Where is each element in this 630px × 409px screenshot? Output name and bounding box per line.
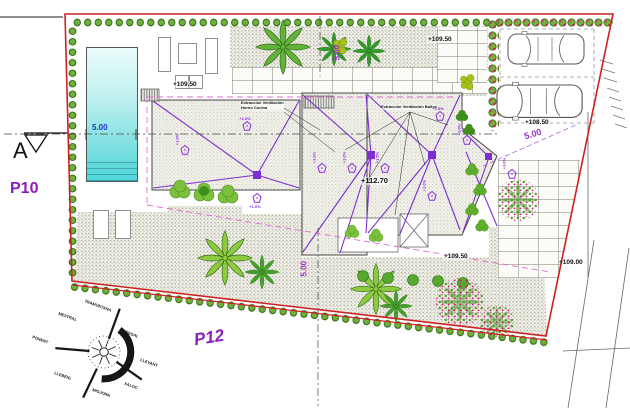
car [508,32,584,67]
elevation-roof: +112.70 [360,177,389,185]
stairs [304,96,334,108]
slope-label: +1.5% [375,149,380,167]
elevation-garden-bottom: +109.50 [443,253,469,260]
elevation-garden-top: +109.50 [427,36,453,43]
setback-dimension-top: 5.00 [333,41,342,61]
stairs [141,89,159,101]
slope-label: +1.0% [175,131,180,149]
elevation-street: +109.00 [558,259,584,266]
building-roof [152,93,497,255]
plan-drawing [0,0,630,409]
pool-dimension: 5.00 [92,123,108,132]
slope-label: +1.0% [422,177,427,195]
setback-dimension-bottom: 5.00 [300,257,309,277]
slope-label: +1.5% [429,106,447,111]
vent-kitchen-note: Extracción Ventilación Horno Cocina [241,101,284,110]
slope-label: +1.0% [236,116,254,121]
section-marker-label: A [13,138,28,164]
slope-label: +1.0% [246,204,264,209]
elevation-terrace: +109.50 [172,81,198,88]
slope-label: +1.0% [502,155,507,173]
slope-label: +1.0% [457,121,462,139]
trees [334,39,475,91]
slope-label: +1.0% [342,149,347,167]
site-plan: +109.50 +109.50 +108.50 +112.70 +109.50 … [0,0,630,409]
elevation-parking: +108.50 [524,119,550,126]
parcel-label-p10: P10 [10,180,38,198]
slope-label: +1.0% [312,149,317,167]
car [497,82,582,120]
